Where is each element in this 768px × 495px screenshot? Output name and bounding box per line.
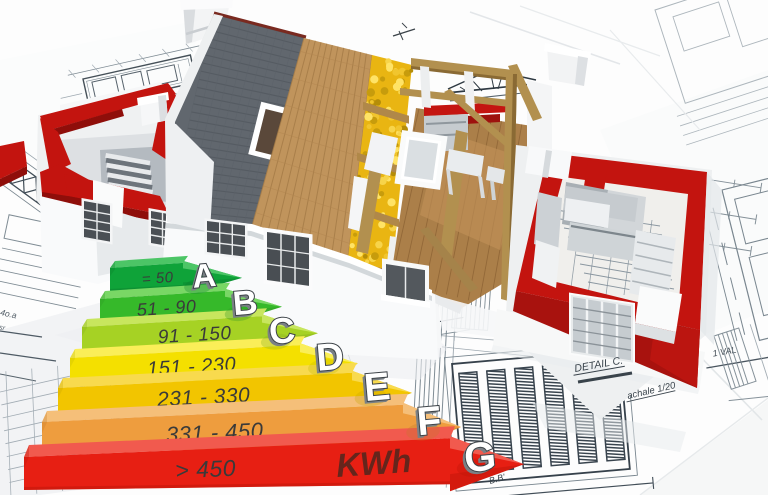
svg-text:KWh: KWh: [335, 442, 413, 484]
svg-text:= 50: = 50: [141, 269, 174, 288]
svg-text:A: A: [191, 256, 218, 295]
svg-text:> 450: > 450: [175, 455, 237, 484]
svg-text:D: D: [315, 336, 346, 380]
svg-text:F: F: [415, 398, 443, 444]
svg-text:C: C: [267, 309, 296, 352]
svg-text:E: E: [362, 365, 392, 410]
svg-text:B: B: [231, 283, 259, 323]
svg-text:G: G: [462, 432, 498, 481]
